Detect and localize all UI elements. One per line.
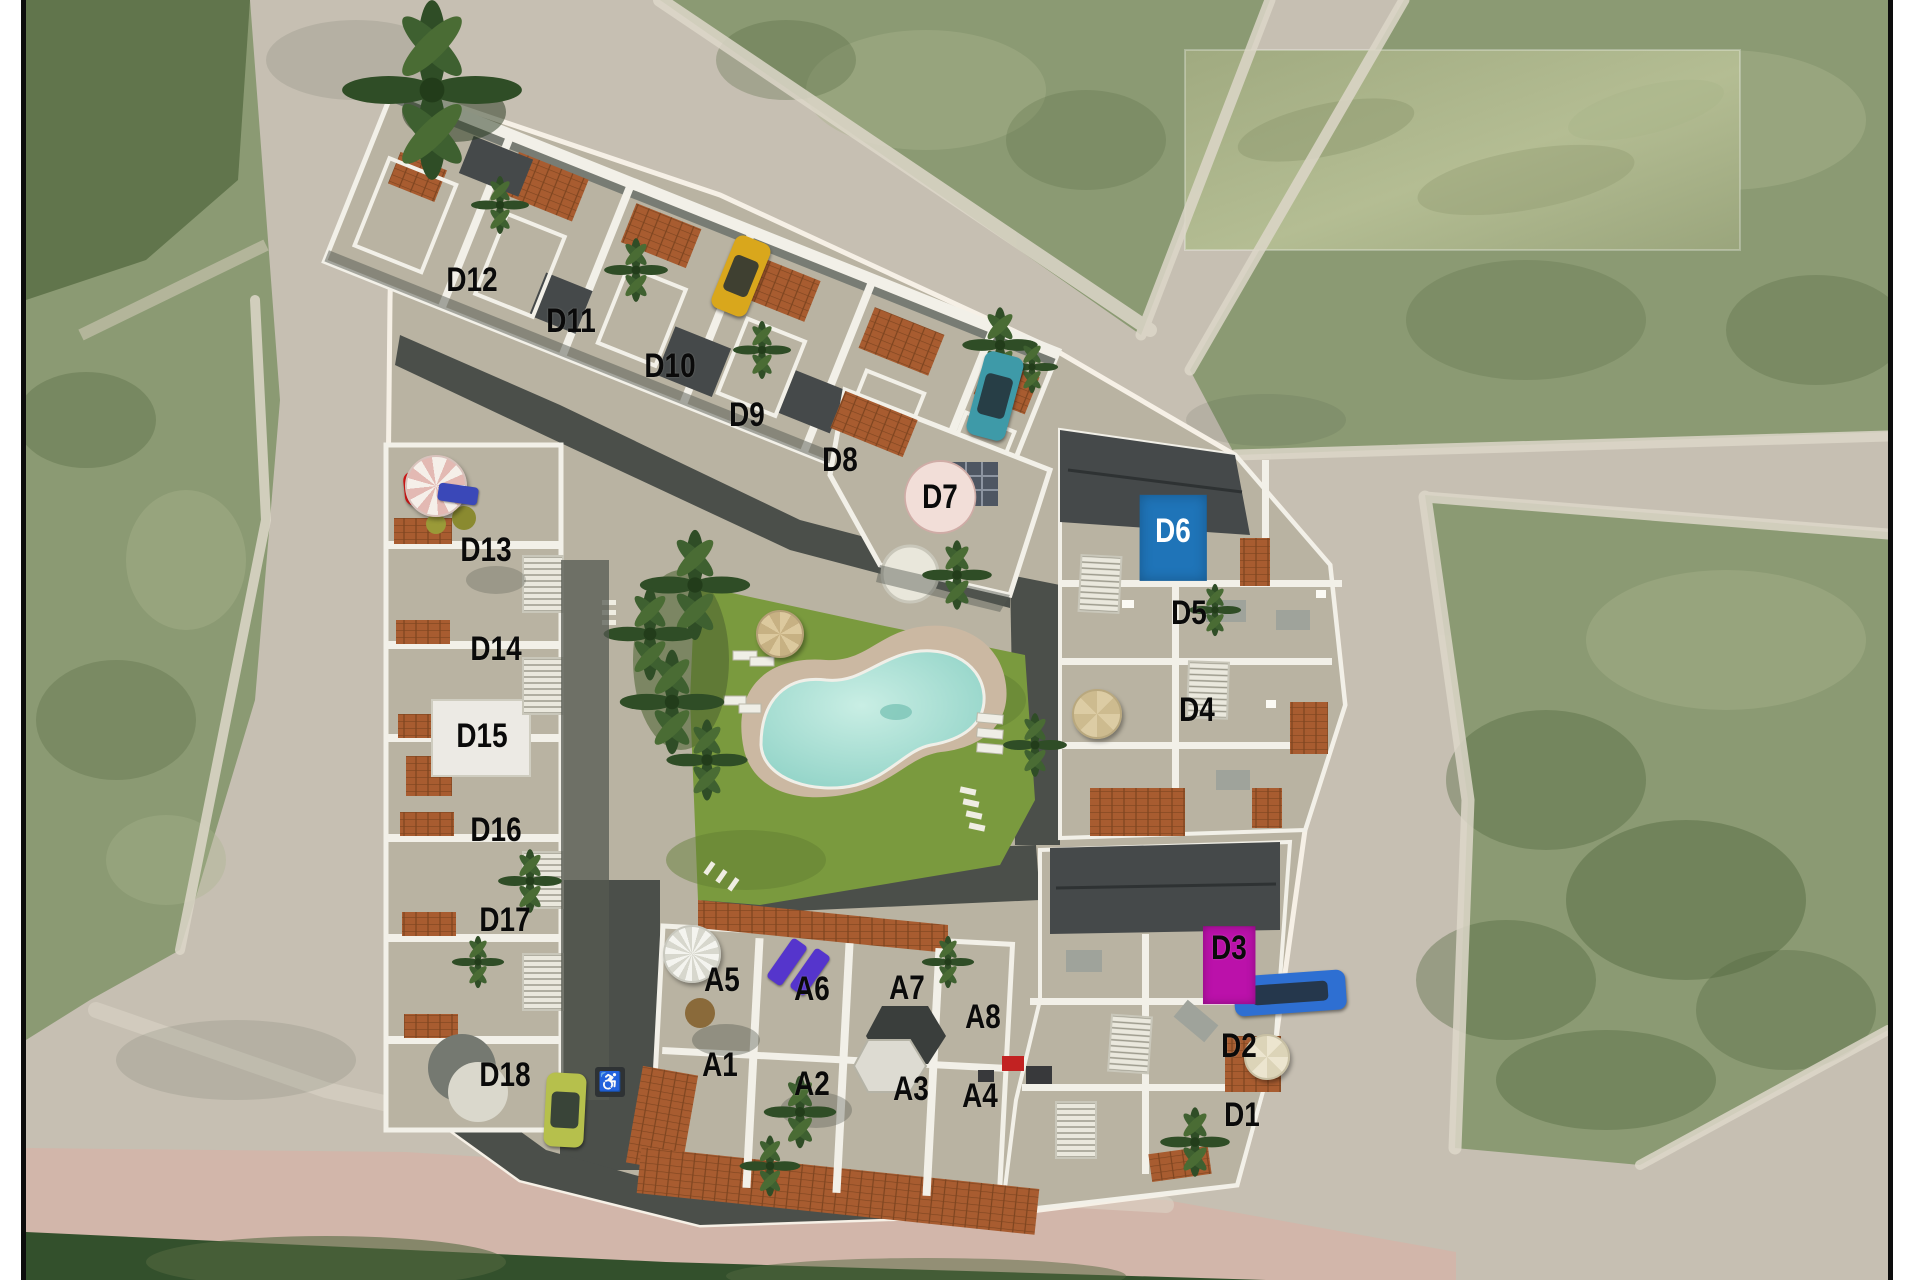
building-southeast: [1002, 842, 1290, 1212]
page: ♿ D12D11D10D9D8D7D13D14D15D16D17D18D6D5D…: [0, 0, 1920, 1280]
building-a-block: [626, 900, 1052, 1235]
field-top-right: [1185, 0, 1888, 455]
aerial-scene: [26, 0, 1888, 1280]
aerial-stage: ♿ D12D11D10D9D8D7D13D14D15D16D17D18D6D5D…: [26, 0, 1888, 1280]
site-plan-photo: ♿ D12D11D10D9D8D7D13D14D15D16D17D18D6D5D…: [21, 0, 1893, 1280]
